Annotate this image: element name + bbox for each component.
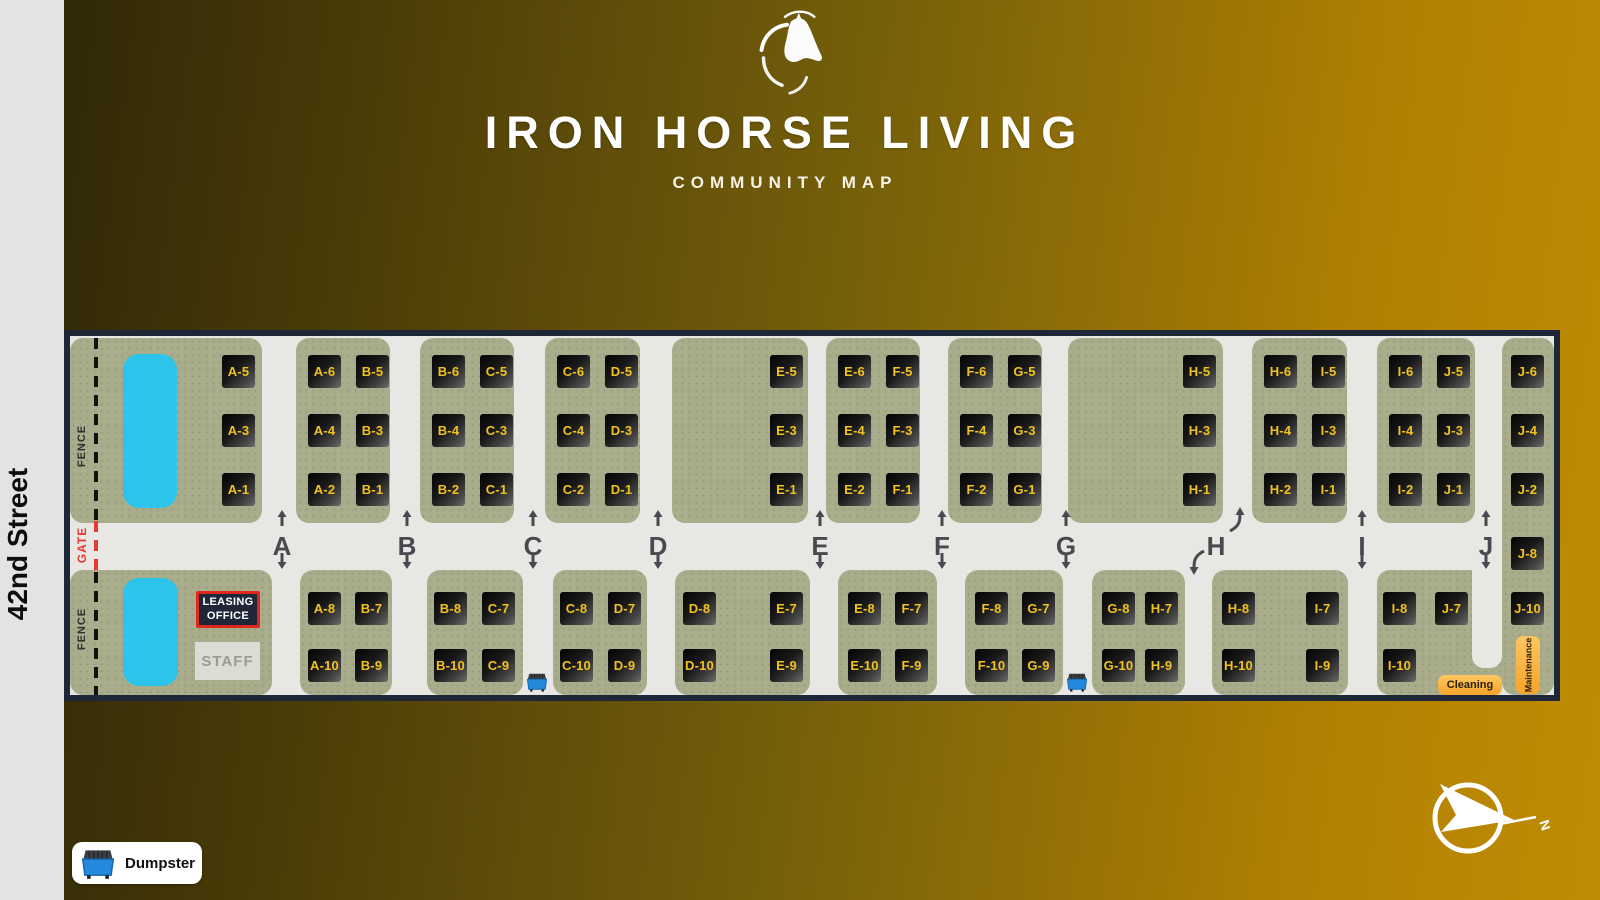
dumpster-legend-label: Dumpster [125,855,195,872]
unit-F-2: F-2 [960,473,993,506]
unit-F-9: F-9 [895,649,928,682]
section-C-down-arrow-icon [527,552,539,570]
unit-H-10: H-10 [1222,649,1255,682]
section-F-up-arrow-icon [936,509,948,527]
unit-E-3: E-3 [770,414,803,447]
street-label: 42nd Street [2,464,34,624]
section-A-down-arrow-icon [276,552,288,570]
unit-H-1: H-1 [1183,473,1216,506]
unit-B-5: B-5 [356,355,389,388]
unit-D-3: D-3 [605,414,638,447]
leasing-office: LEASING OFFICE [196,591,260,628]
unit-I-1: I-1 [1312,473,1345,506]
unit-B-8: B-8 [434,592,467,625]
unit-F-10: F-10 [975,649,1008,682]
section-G-down-arrow-icon [1060,552,1072,570]
unit-H-4: H-4 [1264,414,1297,447]
unit-A-6: A-6 [308,355,341,388]
unit-C-5: C-5 [480,355,513,388]
unit-I-10: I-10 [1383,649,1416,682]
unit-F-5: F-5 [886,355,919,388]
unit-D-7: D-7 [608,592,641,625]
horse-head-logo-icon [735,10,835,103]
unit-H-5: H-5 [1183,355,1216,388]
unit-J-6: J-6 [1511,355,1544,388]
unit-F-3: F-3 [886,414,919,447]
leasing-office-line2: OFFICE [207,610,249,623]
unit-E-10: E-10 [848,649,881,682]
unit-I-5: I-5 [1312,355,1345,388]
unit-C-4: C-4 [557,414,590,447]
unit-E-9: E-9 [770,649,803,682]
fence-label-top: FENCE [76,425,88,467]
unit-H-2: H-2 [1264,473,1297,506]
page-title: IRON HORSE LIVING [0,107,1570,159]
gate-line [94,521,98,572]
unit-A-10: A-10 [308,649,341,682]
fence-line-top [94,338,98,521]
unit-C-3: C-3 [480,414,513,447]
unit-F-7: F-7 [895,592,928,625]
unit-B-6: B-6 [432,355,465,388]
unit-D-10: D-10 [683,649,716,682]
compass-north-label: N [1536,818,1550,833]
unit-E-1: E-1 [770,473,803,506]
unit-B-3: B-3 [356,414,389,447]
unit-J-8: J-8 [1511,537,1544,570]
unit-H-9: H-9 [1145,649,1178,682]
unit-G-5: G-5 [1008,355,1041,388]
community-map: LEASING OFFICE STAFF Cleaning Maintenanc… [64,330,1560,701]
unit-D-5: D-5 [605,355,638,388]
unit-G-7: G-7 [1022,592,1055,625]
section-E-up-arrow-icon [814,509,826,527]
unit-C-1: C-1 [480,473,513,506]
page-subtitle: COMMUNITY MAP [0,173,1570,193]
unit-H-7: H-7 [1145,592,1178,625]
section-D-down-arrow-icon [652,552,664,570]
map-dumpster-icon-2 [1065,671,1089,693]
unit-J-4: J-4 [1511,414,1544,447]
section-J-up-arrow-icon [1480,509,1492,527]
unit-I-3: I-3 [1312,414,1345,447]
unit-E-2: E-2 [838,473,871,506]
maintenance-label: Maintenance [1523,638,1533,693]
unit-G-9: G-9 [1022,649,1055,682]
unit-B-2: B-2 [432,473,465,506]
section-B-down-arrow-icon [401,552,413,570]
unit-C-6: C-6 [557,355,590,388]
unit-I-7: I-7 [1306,592,1339,625]
unit-J-5: J-5 [1437,355,1470,388]
unit-I-4: I-4 [1389,414,1422,447]
unit-J-1: J-1 [1437,473,1470,506]
unit-J-7: J-7 [1435,592,1468,625]
unit-F-1: F-1 [886,473,919,506]
section-D-up-arrow-icon [652,509,664,527]
unit-F-4: F-4 [960,414,993,447]
section-J-down-arrow-icon [1480,552,1492,570]
unit-A-5: A-5 [222,355,255,388]
unit-A-8: A-8 [308,592,341,625]
unit-C-2: C-2 [557,473,590,506]
leasing-office-line1: LEASING [203,596,254,609]
unit-G-3: G-3 [1008,414,1041,447]
header: IRON HORSE LIVING COMMUNITY MAP [0,0,1570,193]
section-E-down-arrow-icon [814,552,826,570]
unit-G-10: G-10 [1102,649,1135,682]
unit-J-2: J-2 [1511,473,1544,506]
unit-D-9: D-9 [608,649,641,682]
section-B-up-arrow-icon [401,509,413,527]
unit-C-7: C-7 [482,592,515,625]
unit-C-9: C-9 [482,649,515,682]
unit-B-10: B-10 [434,649,467,682]
map-dumpster-icon-1 [525,671,549,693]
dumpster-icon [79,846,117,881]
section-H-down-arrow-icon [1188,550,1206,576]
cleaning-box: Cleaning [1438,675,1502,695]
unit-I-9: I-9 [1306,649,1339,682]
unit-A-2: A-2 [308,473,341,506]
unit-C-10: C-10 [560,649,593,682]
unit-A-3: A-3 [222,414,255,447]
section-H-up-arrow-icon [1228,506,1246,532]
unit-G-1: G-1 [1008,473,1041,506]
pool-2 [123,578,178,686]
road-j-dead-end [1472,570,1502,668]
section-G-up-arrow-icon [1060,509,1072,527]
unit-E-8: E-8 [848,592,881,625]
section-I-down-arrow-icon [1356,552,1368,570]
unit-C-8: C-8 [560,592,593,625]
unit-G-8: G-8 [1102,592,1135,625]
unit-A-1: A-1 [222,473,255,506]
unit-H-3: H-3 [1183,414,1216,447]
unit-I-8: I-8 [1383,592,1416,625]
unit-D-1: D-1 [605,473,638,506]
unit-A-4: A-4 [308,414,341,447]
unit-E-5: E-5 [770,355,803,388]
staff-box: STAFF [195,642,260,680]
unit-I-6: I-6 [1389,355,1422,388]
unit-I-2: I-2 [1389,473,1422,506]
unit-J-3: J-3 [1437,414,1470,447]
unit-H-6: H-6 [1264,355,1297,388]
gate-label: GATE [75,527,89,563]
unit-B-4: B-4 [432,414,465,447]
unit-B-7: B-7 [355,592,388,625]
maintenance-box: Maintenance [1516,636,1540,694]
unit-B-9: B-9 [355,649,388,682]
unit-F-8: F-8 [975,592,1008,625]
section-I-up-arrow-icon [1356,509,1368,527]
unit-E-6: E-6 [838,355,871,388]
dumpster-legend: Dumpster [72,842,202,884]
fence-line-bottom [94,572,98,695]
unit-D-8: D-8 [683,592,716,625]
section-A-up-arrow-icon [276,509,288,527]
compass-icon: N [1418,772,1550,860]
unit-H-8: H-8 [1222,592,1255,625]
section-F-down-arrow-icon [936,552,948,570]
fence-label-bottom: FENCE [76,608,88,650]
unit-E-7: E-7 [770,592,803,625]
unit-E-4: E-4 [838,414,871,447]
unit-J-10: J-10 [1511,592,1544,625]
section-C-up-arrow-icon [527,509,539,527]
pool-1 [123,354,177,508]
unit-F-6: F-6 [960,355,993,388]
unit-B-1: B-1 [356,473,389,506]
